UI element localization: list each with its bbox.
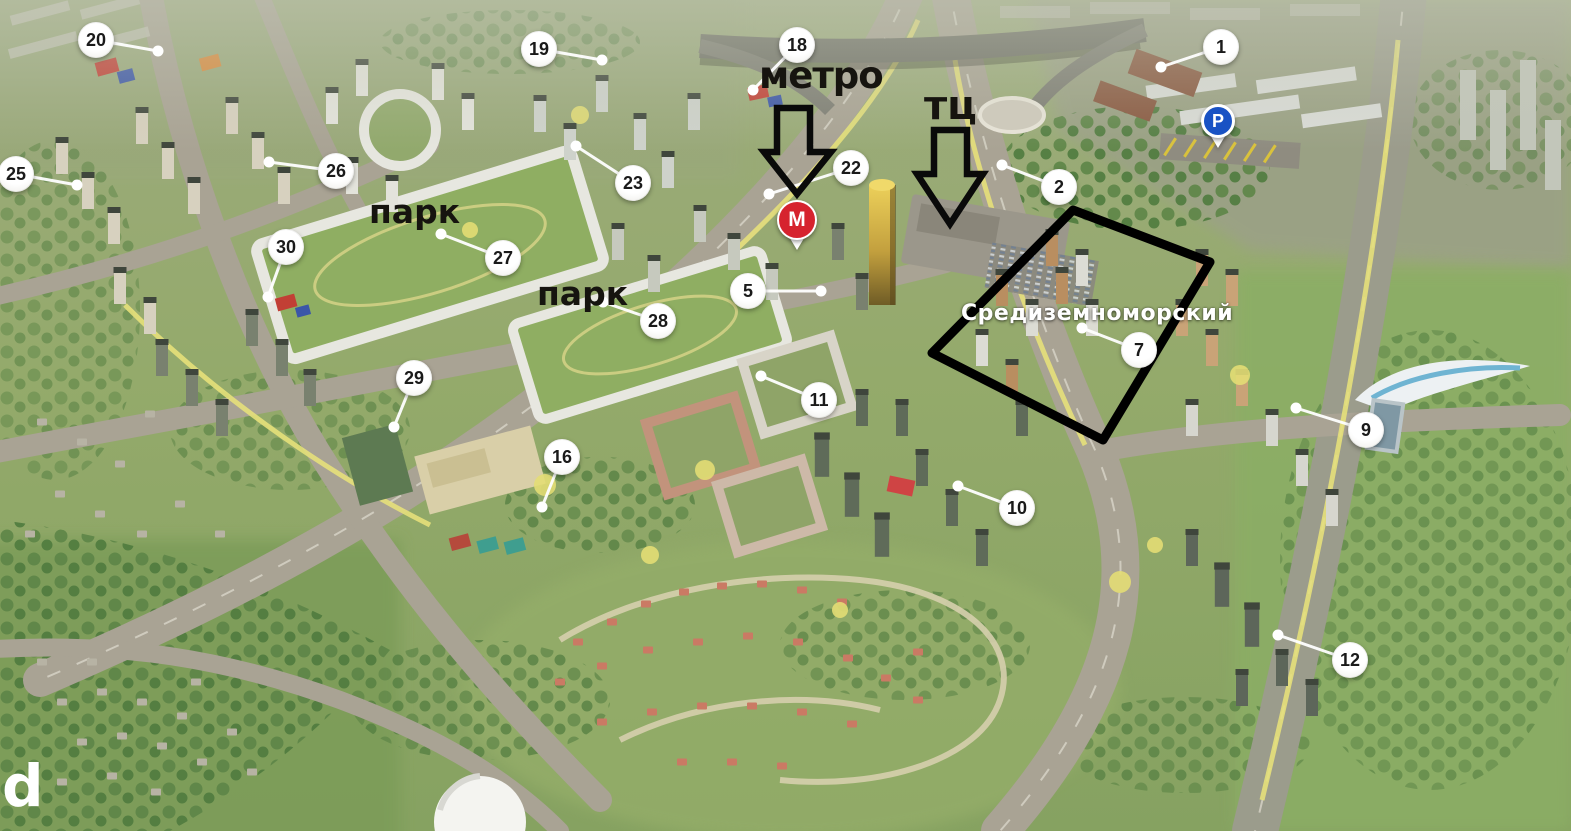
map-marker-9[interactable]: 9 <box>1348 412 1384 448</box>
map-marker-20[interactable]: 20 <box>78 22 114 58</box>
park-label-2: парк <box>537 277 628 310</box>
metro-pin-letter: М <box>788 208 806 232</box>
map-marker-23[interactable]: 23 <box>615 165 651 201</box>
map-marker-19[interactable]: 19 <box>521 31 557 67</box>
metro-station-pin[interactable]: М <box>777 200 817 240</box>
map-marker-29[interactable]: 29 <box>396 360 432 396</box>
map-marker-18[interactable]: 18 <box>779 27 815 63</box>
district-name-label: Средиземноморский <box>961 303 1233 325</box>
leader-lines <box>16 40 1366 660</box>
map-marker-5[interactable]: 5 <box>730 273 766 309</box>
map-marker-11[interactable]: 11 <box>801 382 837 418</box>
map-marker-22[interactable]: 22 <box>833 150 869 186</box>
map-marker-27[interactable]: 27 <box>485 240 521 276</box>
mall-arrow-icon <box>917 130 983 224</box>
map-marker-1[interactable]: 1 <box>1203 29 1239 65</box>
annotation-layer <box>0 0 1571 831</box>
parking-icon: P <box>1201 104 1235 138</box>
map-marker-28[interactable]: 28 <box>640 303 676 339</box>
mall-label: тц <box>924 86 977 126</box>
map-marker-26[interactable]: 26 <box>318 153 354 189</box>
map-marker-30[interactable]: 30 <box>268 229 304 265</box>
metro-icon: М <box>777 200 817 240</box>
park-label-1: парк <box>369 195 460 228</box>
map-marker-16[interactable]: 16 <box>544 439 580 475</box>
watermark-letter: d <box>2 757 44 815</box>
parking-pin[interactable]: P <box>1201 104 1235 138</box>
map-marker-12[interactable]: 12 <box>1332 642 1368 678</box>
parking-pin-letter: P <box>1212 111 1224 132</box>
metro-label: метро <box>759 57 883 94</box>
map-marker-10[interactable]: 10 <box>999 490 1035 526</box>
aerial-map: метро тц парк парк Средиземноморский d М… <box>0 0 1571 831</box>
map-marker-2[interactable]: 2 <box>1041 169 1077 205</box>
metro-arrow-icon <box>764 108 831 194</box>
map-marker-7[interactable]: 7 <box>1121 332 1157 368</box>
